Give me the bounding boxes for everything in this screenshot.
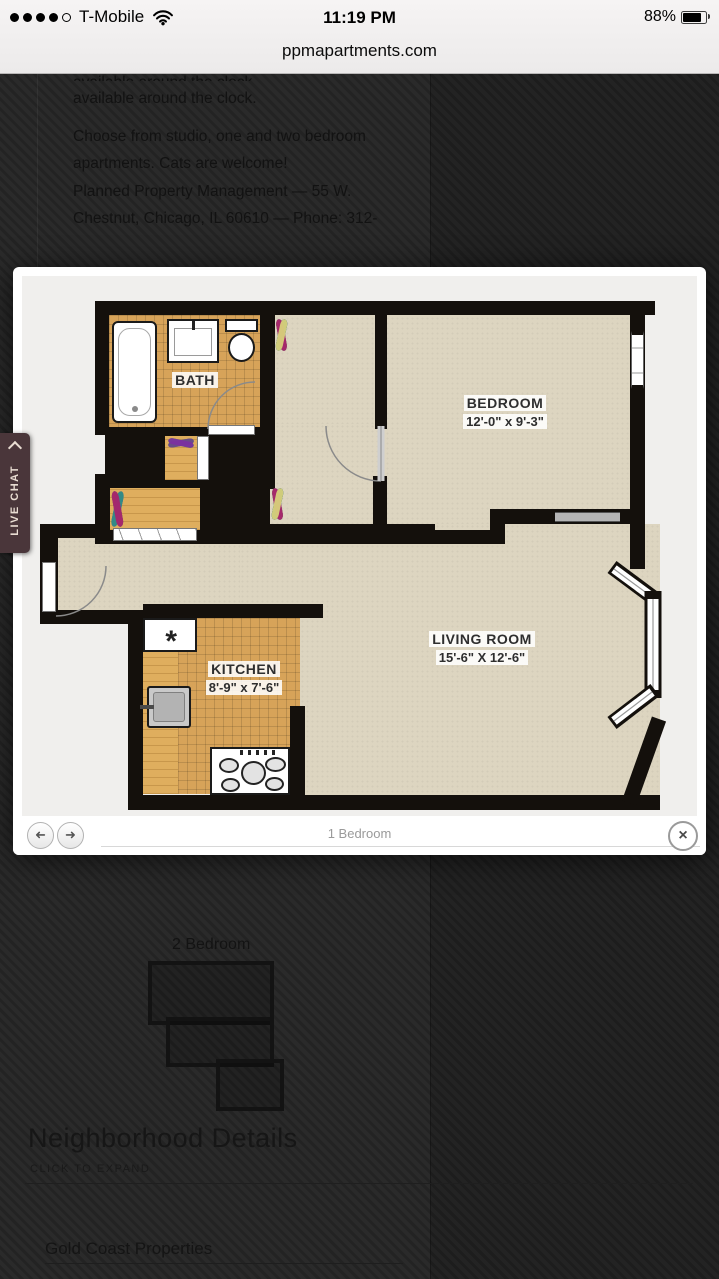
url-bar[interactable]: ppmapartments.com	[0, 36, 719, 70]
carrier-label: T-Mobile	[79, 7, 144, 27]
gold-coast-properties-link[interactable]: Gold Coast Properties	[45, 1239, 212, 1259]
wifi-icon	[152, 9, 174, 26]
url-text: ppmapartments.com	[282, 41, 437, 60]
close-icon: ×	[678, 827, 687, 844]
battery-icon	[681, 11, 707, 24]
lightbox-modal: * BATH BEDROOM 12'-0" x 9'-3"	[13, 267, 706, 855]
live-chat-label: LIVE CHAT	[9, 465, 21, 536]
floorplan-caption: 1 Bedroom	[13, 826, 706, 841]
battery-percent: 88%	[644, 8, 676, 26]
two-bedroom-thumb[interactable]	[148, 959, 288, 1109]
close-button[interactable]: ×	[668, 821, 698, 851]
closet-hangers	[168, 440, 194, 476]
signal-dots	[10, 13, 71, 22]
caption-bar: ➜ ➜ 1 Bedroom ×	[13, 816, 706, 855]
iphone-screen: available around the clock. available ar…	[0, 0, 719, 1279]
bedroom-label: BEDROOM 12'-0" x 9'-3"	[430, 394, 580, 431]
closet-hangers	[114, 491, 196, 527]
floor-plan-image: * BATH BEDROOM 12'-0" x 9'-3"	[22, 276, 697, 816]
neighborhood-section-title[interactable]: Neighborhood Details	[28, 1123, 298, 1154]
caption-underline	[101, 846, 700, 847]
bath-label: BATH	[160, 371, 230, 390]
link-underline	[45, 1263, 403, 1264]
living-room-label: LIVING ROOM 15'-6" X 12'-6"	[392, 630, 572, 667]
clipped-text-line: available around the clock.	[73, 74, 405, 81]
time-label: 11:19 PM	[323, 8, 396, 28]
paragraph: Choose from studio, one and two bedroom …	[73, 123, 405, 177]
closet-hangers	[274, 488, 370, 520]
closet-hangers	[278, 319, 376, 351]
paragraph: available around the clock.	[73, 85, 405, 112]
chevron-icon	[8, 441, 22, 455]
status-bar: T-Mobile 11:19 PM 88% ppmapartments.com	[0, 0, 719, 74]
paragraph: Planned Property Management — 55 W. Ches…	[73, 178, 405, 232]
two-bedroom-thumb-label[interactable]: 2 Bedroom	[172, 936, 250, 954]
bay-window-and-door-arcs	[22, 276, 697, 816]
live-chat-tab[interactable]: LIVE CHAT	[0, 433, 30, 553]
section-divider	[25, 1183, 693, 1184]
column-border	[37, 73, 38, 268]
kitchen-label: KITCHEN 8'-9" x 7'-6"	[185, 660, 303, 697]
click-to-expand-label: CLICK TO EXPAND	[30, 1163, 150, 1175]
